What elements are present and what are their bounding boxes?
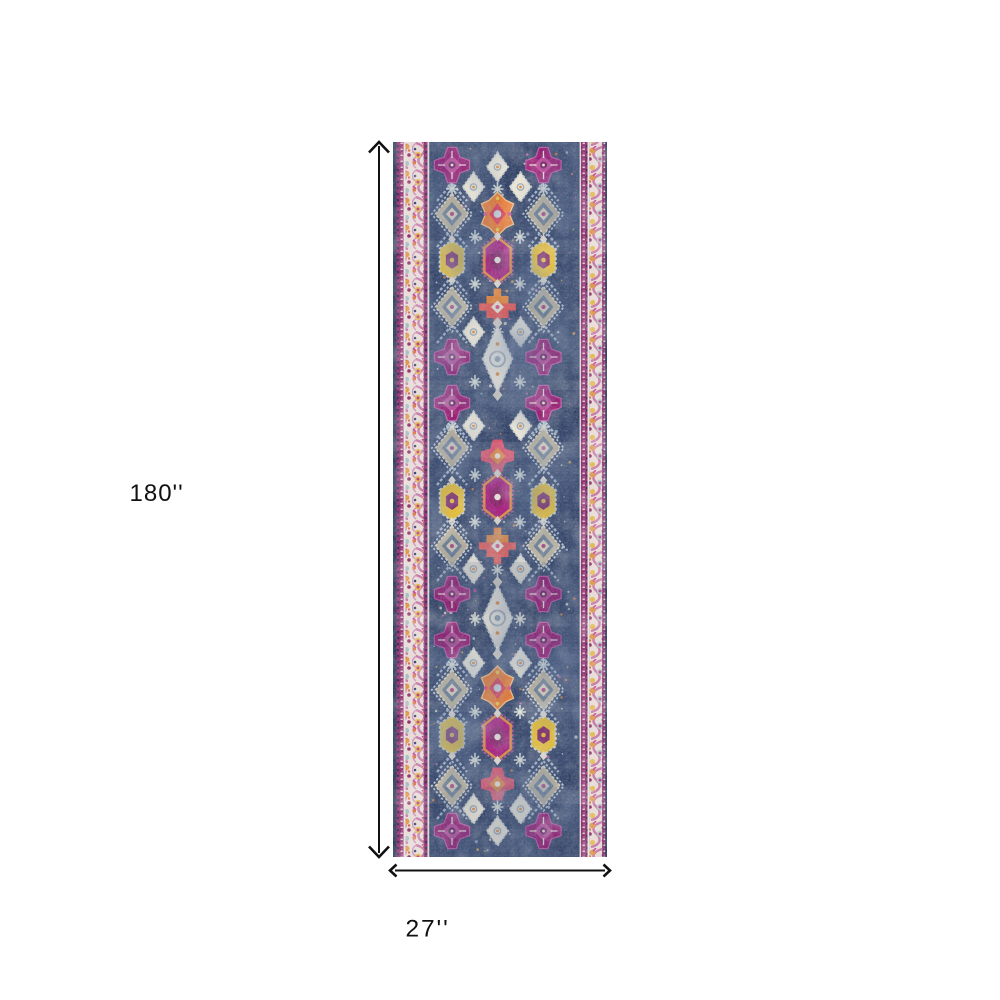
svg-text:180'': 180'' — [130, 480, 184, 507]
svg-text:27'': 27'' — [406, 916, 450, 943]
